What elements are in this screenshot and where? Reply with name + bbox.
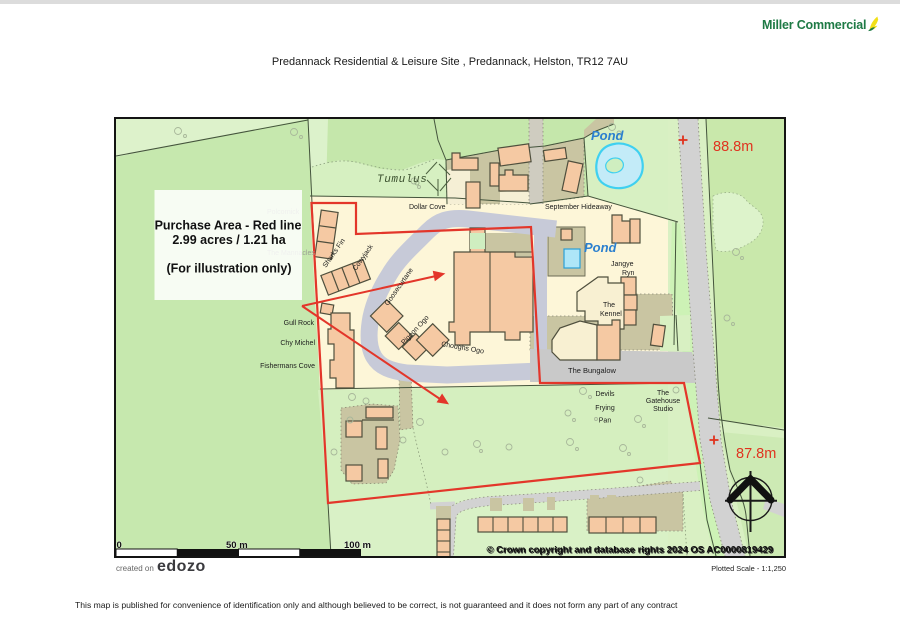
svg-text:Frying: Frying [595, 405, 615, 412]
svg-text:87.8m: 87.8m [736, 446, 776, 462]
svg-text:Purchase Area - Red line: Purchase Area - Red line [155, 219, 302, 233]
svg-text:Fishermans Cove: Fishermans Cove [260, 363, 315, 370]
svg-text:50 m: 50 m [226, 540, 248, 551]
svg-text:Ryn: Ryn [622, 270, 635, 277]
svg-text:Studio: Studio [653, 406, 673, 413]
svg-text:© Crown copyright and database: © Crown copyright and database rights 20… [487, 545, 773, 556]
svg-text:Jangye: Jangye [611, 261, 634, 268]
svg-text:The Bungalow: The Bungalow [568, 366, 617, 375]
svg-text:Gull Rock: Gull Rock [284, 320, 315, 327]
svg-text:2.99 acres / 1.21 ha: 2.99 acres / 1.21 ha [172, 233, 286, 247]
svg-text:Chy Michel: Chy Michel [280, 340, 315, 347]
svg-text:(For illustration only): (For illustration only) [167, 262, 292, 276]
svg-text:100 m: 100 m [344, 540, 371, 551]
svg-text:Tumulus: Tumulus [377, 174, 427, 186]
svg-text:Devils: Devils [595, 391, 615, 398]
svg-text:Gatehouse: Gatehouse [646, 398, 680, 405]
svg-text:The: The [657, 390, 669, 397]
svg-text:88.8m: 88.8m [713, 139, 753, 155]
svg-text:Pond: Pond [584, 240, 618, 255]
svg-text:September Hideaway: September Hideaway [545, 204, 612, 211]
svg-text:The: The [603, 302, 615, 309]
svg-text:Dollar Cove: Dollar Cove [409, 204, 446, 211]
svg-text:Pond: Pond [591, 128, 625, 143]
svg-text:Kennel: Kennel [600, 311, 622, 318]
svg-text:0: 0 [117, 540, 122, 551]
svg-text:Pan: Pan [599, 418, 612, 425]
